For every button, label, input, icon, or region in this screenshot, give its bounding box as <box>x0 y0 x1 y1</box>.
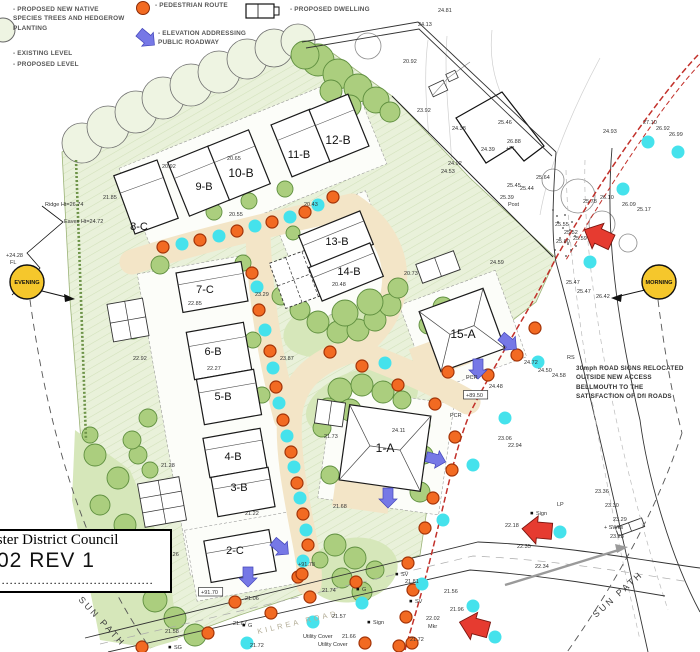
spot-level: 24.59 <box>490 260 504 266</box>
svg-text:22.92: 22.92 <box>133 356 147 362</box>
svg-text:Sign: Sign <box>536 511 547 517</box>
plot-label: 13-B <box>325 236 348 248</box>
svg-text:SG: SG <box>174 645 182 651</box>
svg-text:SV: SV <box>415 599 423 605</box>
legend-pedestrian-label: - PEDESTRIAN ROUTE <box>155 1 275 10</box>
svg-text:21.81: 21.81 <box>405 579 419 585</box>
svg-text:20.55: 20.55 <box>229 212 243 218</box>
spot-level: 26.99 <box>669 132 683 138</box>
feature-label: RS <box>567 355 575 361</box>
svg-text:21.72: 21.72 <box>250 643 264 649</box>
pedestrian-route-dot <box>350 576 362 588</box>
existing-tree <box>619 234 637 252</box>
svg-text:26.99: 26.99 <box>669 132 683 138</box>
svg-text:+24.28: +24.28 <box>6 253 23 259</box>
street-marker-dot <box>617 183 630 196</box>
svg-text:+FL: +FL <box>506 146 516 152</box>
street-marker-dot <box>489 631 502 644</box>
plot-label: 7-C <box>196 284 214 296</box>
pedestrian-route-dot <box>511 349 523 361</box>
feature-label: G <box>243 623 253 629</box>
legend-planting-label: - PROPOSED NEW NATIVE SPECIES TREES AND … <box>13 5 148 33</box>
pedestrian-route-dot <box>302 539 314 551</box>
tree <box>357 289 383 315</box>
svg-text:25.55: 25.55 <box>555 222 569 228</box>
svg-text:25.64: 25.64 <box>536 175 550 181</box>
plot-label: 2-C <box>226 545 244 557</box>
spot-level: 21.74 <box>322 588 336 594</box>
svg-text:21.72: 21.72 <box>410 637 424 643</box>
feature-label: Mkr <box>428 624 437 630</box>
svg-text:23.92: 23.92 <box>417 108 431 114</box>
spot-level: 21.85 <box>103 195 117 201</box>
svg-text:25.45: 25.45 <box>507 183 521 189</box>
svg-text:23.36: 23.36 <box>595 489 609 495</box>
plot-label: 8-C <box>130 221 148 233</box>
svg-text:26.92: 26.92 <box>656 126 670 132</box>
tree <box>351 374 373 396</box>
plot-label: 3-B <box>230 482 247 494</box>
tree <box>151 256 169 274</box>
feature-label: Post <box>508 202 519 208</box>
spot-level: +24.28 <box>6 253 23 259</box>
spot-level: 21.68 <box>333 504 347 510</box>
title-block: Mid Ulster District Council Drawing 02 R… <box>0 529 172 593</box>
svg-text:23.87: 23.87 <box>280 356 294 362</box>
title-block-number-label: Number..................................… <box>0 573 165 588</box>
svg-text:LP: LP <box>557 502 564 508</box>
spot-level: 21.66 <box>342 634 356 640</box>
tree <box>241 193 257 209</box>
street-marker-dot <box>554 526 567 539</box>
svg-text:23.29: 23.29 <box>255 292 269 298</box>
svg-text:25.44: 25.44 <box>520 186 534 192</box>
spot-level: 21.96 <box>450 607 464 613</box>
pedestrian-route-dot <box>419 522 431 534</box>
svg-text:21.56: 21.56 <box>444 589 458 595</box>
pedestrian-route-dot <box>446 464 458 476</box>
feature-label: SV <box>410 599 423 605</box>
svg-text:+ SWks: + SWks <box>604 525 623 531</box>
spot-level: 21.58 <box>165 629 179 635</box>
svg-text:25.46: 25.46 <box>498 120 512 126</box>
spot-level: 24.81 <box>438 8 452 14</box>
title-block-council: Mid Ulster District Council <box>0 532 165 549</box>
tree <box>123 431 141 449</box>
pedestrian-route-dot <box>277 414 289 426</box>
plot-label: 11-B <box>288 149 310 161</box>
spot-level: 24.58 <box>552 373 566 379</box>
tree <box>307 311 329 333</box>
plot-label: 10-B <box>228 166 253 180</box>
svg-text:PCR: PCR <box>466 375 478 381</box>
spot-level: 25.78 <box>583 199 597 205</box>
plot-label: 4-B <box>224 451 241 463</box>
svg-text:+89.50: +89.50 <box>466 393 483 399</box>
svg-text:25.78: 25.78 <box>583 199 597 205</box>
street-marker-dot <box>467 459 480 472</box>
svg-text:24.50: 24.50 <box>538 368 552 374</box>
svg-text:23.30: 23.30 <box>605 503 619 509</box>
street-marker-dot <box>467 600 480 613</box>
street-marker-dot <box>213 230 226 243</box>
svg-text:Eaves Ht=24.72: Eaves Ht=24.72 <box>64 219 103 225</box>
spot-level: 23.28 <box>610 534 624 540</box>
pedestrian-route-dot <box>356 360 368 372</box>
pedestrian-route-dot <box>253 304 265 316</box>
street-marker-dot <box>281 430 294 443</box>
svg-text:25.59: 25.59 <box>573 236 587 242</box>
tree <box>321 466 339 484</box>
spot-level: 24.11 <box>392 428 405 434</box>
svg-text:SV: SV <box>401 572 409 578</box>
spot-level: 24.92 <box>448 161 462 167</box>
svg-text:21.57: 21.57 <box>332 614 346 620</box>
red-direction-arrow-icon <box>521 515 553 546</box>
pedestrian-route-dot <box>291 477 303 489</box>
spot-level: 20.73 <box>404 271 418 277</box>
spot-level: 25.45 <box>507 183 521 189</box>
spot-level: 25.46 <box>498 120 512 126</box>
svg-text:24.92: 24.92 <box>448 161 462 167</box>
svg-text:22.34: 22.34 <box>535 564 549 570</box>
spot-level: 26.92 <box>656 126 670 132</box>
street-marker-dot <box>259 324 272 337</box>
street-marker-dot <box>176 238 189 251</box>
pedestrian-route-dot <box>270 381 282 393</box>
svg-text:24.72: 24.72 <box>524 360 538 366</box>
spot-level: 25.17 <box>637 207 651 213</box>
spot-level: 27.10 <box>643 120 657 126</box>
legend-existing-level-label: - EXISTING LEVEL <box>13 49 133 58</box>
svg-text:24.59: 24.59 <box>490 260 504 266</box>
tree <box>286 226 300 240</box>
spot-level: 20.92 <box>162 164 176 170</box>
morning-label: MORNING <box>645 280 672 286</box>
spot-level: 23.87 <box>280 356 294 362</box>
spot-level: 22.18 <box>505 523 519 529</box>
spot-level: 23.36 <box>595 489 609 495</box>
pedestrian-route-dot <box>202 627 214 639</box>
plot-label: 6-B <box>204 346 221 358</box>
spot-level: 25.39 <box>500 195 514 201</box>
spot-level: 21.28 <box>161 463 175 469</box>
spot-level: 23.29 <box>613 517 627 523</box>
svg-text:25.39: 25.39 <box>500 195 514 201</box>
svg-text:24.81: 24.81 <box>438 8 452 14</box>
feature-label: PCR <box>466 375 478 381</box>
street-marker-dot <box>437 514 450 527</box>
street-marker-dot <box>273 397 286 410</box>
svg-text:PCR: PCR <box>450 413 462 419</box>
spot-level: 23.92 <box>417 108 431 114</box>
tree <box>324 534 346 556</box>
svg-text:22.02: 22.02 <box>426 616 440 622</box>
street-marker-dot <box>379 357 392 370</box>
pedestrian-route-dot <box>429 398 441 410</box>
svg-text:20.73: 20.73 <box>404 271 418 277</box>
pedestrian-route-dot <box>400 611 412 623</box>
spot-level: 20.65 <box>227 156 241 162</box>
spot-level: 23.30 <box>605 503 619 509</box>
svg-text:22.85: 22.85 <box>188 301 202 307</box>
svg-text:24.93: 24.93 <box>603 129 617 135</box>
pedestrian-route-dot <box>266 216 278 228</box>
spot-level: 20.55 <box>229 212 243 218</box>
pedestrian-route-dot <box>327 191 339 203</box>
tree <box>277 181 293 197</box>
tree <box>107 467 129 489</box>
spot-level: 23.06 <box>498 436 512 442</box>
outbuilding <box>314 399 345 427</box>
svg-text:25.60: 25.60 <box>556 239 570 245</box>
svg-text:20.92: 20.92 <box>162 164 176 170</box>
svg-text:26.42: 26.42 <box>596 294 610 300</box>
pedestrian-route-dot <box>194 234 206 246</box>
tree <box>291 41 319 69</box>
spot-level: 21.72 <box>410 637 424 643</box>
spot-level: 21.22 <box>245 511 259 517</box>
tree <box>380 102 400 122</box>
feature-label: + SWks <box>604 525 623 531</box>
svg-text:FL: FL <box>10 260 16 266</box>
soil-dot <box>565 255 567 257</box>
spot-level: 24.93 <box>603 129 617 135</box>
spot-level: 24.72 <box>524 360 538 366</box>
svg-text:21.73: 21.73 <box>324 434 338 440</box>
spot-level: 25.44 <box>520 186 534 192</box>
tree <box>84 444 106 466</box>
street-marker-dot <box>356 597 369 610</box>
feature-label: LP <box>557 502 564 508</box>
spot-level: 24.13 <box>418 22 432 28</box>
pedestrian-route-dot <box>427 492 439 504</box>
tree <box>139 409 157 427</box>
spot-level: 22.02 <box>426 616 440 622</box>
feature-label: PCR <box>450 413 462 419</box>
svg-text:20.43: 20.43 <box>304 202 318 208</box>
spot-level: 22.35 <box>517 544 531 550</box>
svg-text:20.48: 20.48 <box>332 282 346 288</box>
spot-level: 25.47 <box>566 280 580 286</box>
spot-level: 22.85 <box>188 301 202 307</box>
spot-level: +91.78 <box>298 562 315 568</box>
pedestrian-route-dot <box>285 446 297 458</box>
feature-label: Utility Cover <box>318 642 348 648</box>
svg-text:20.92: 20.92 <box>403 59 417 65</box>
road-signs-note: 30mph ROAD SIGNS RELOCATED OUTSIDE NEW A… <box>576 364 692 402</box>
pedestrian-route-dot <box>265 607 277 619</box>
spot-level: 21.81 <box>405 579 419 585</box>
svg-text:+91.78: +91.78 <box>298 562 315 568</box>
spot-level: 25.55 <box>555 222 569 228</box>
svg-text:24.11: 24.11 <box>392 428 405 434</box>
spot-level: 22.94 <box>508 443 522 449</box>
spot-level: 21.06 <box>245 596 259 602</box>
spot-level: 20.92 <box>403 59 417 65</box>
svg-text:21.06: 21.06 <box>245 596 259 602</box>
soil-dot <box>570 249 572 251</box>
feature-label: SV <box>396 572 409 578</box>
svg-text:22.27: 22.27 <box>207 366 221 372</box>
street-marker-dot <box>672 146 685 159</box>
spot-level: 26.88 <box>507 139 521 145</box>
pedestrian-route-dot <box>297 508 309 520</box>
spot-level: 24.39 <box>481 147 495 153</box>
spot-level: 22.27 <box>207 366 221 372</box>
street-marker-dot <box>584 256 597 269</box>
spot-level: Eaves Ht=24.72 <box>64 219 103 225</box>
svg-text:24.13: 24.13 <box>418 22 432 28</box>
pedestrian-route-dot <box>393 640 405 652</box>
spot-level: Ridge Ht=26.74 <box>45 202 83 208</box>
street-marker-dot <box>294 492 307 505</box>
feature-label: Sign <box>531 511 548 517</box>
pedestrian-route-dot <box>304 591 316 603</box>
pedestrian-route-dot <box>359 637 371 649</box>
spot-level: 24.38 <box>452 126 466 132</box>
pedestrian-route-dot <box>264 345 276 357</box>
spot-level: 21.73 <box>324 434 338 440</box>
plot-label: 1-A <box>376 441 395 455</box>
svg-text:Post: Post <box>508 202 519 208</box>
tree <box>332 300 358 326</box>
svg-text:Mkr: Mkr <box>428 624 437 630</box>
svg-text:26.10: 26.10 <box>600 195 614 201</box>
red-direction-arrow-icon <box>456 609 492 644</box>
svg-text:23.29: 23.29 <box>613 517 627 523</box>
plot-label: 5-B <box>214 391 231 403</box>
svg-text:21.66: 21.66 <box>342 634 356 640</box>
soil-dot <box>575 245 577 247</box>
svg-text:21.96: 21.96 <box>450 607 464 613</box>
svg-text:23.06: 23.06 <box>498 436 512 442</box>
spot-level: 25.47 <box>577 289 591 295</box>
svg-text:20.65: 20.65 <box>227 156 241 162</box>
street-marker-dot <box>249 220 262 233</box>
soil-dot <box>556 215 558 217</box>
spot-level: +FL <box>506 146 516 152</box>
feature-label: +91.70 <box>199 588 223 597</box>
legend-proposed-level-label: - PROPOSED LEVEL <box>13 60 133 69</box>
title-block-revision: 02 REV 1 <box>0 549 95 573</box>
svg-text:G: G <box>362 587 366 593</box>
svg-text:G: G <box>248 623 252 629</box>
svg-text:24.39: 24.39 <box>481 147 495 153</box>
tree <box>366 561 384 579</box>
spot-level: 26.42 <box>596 294 610 300</box>
feature-label: SG <box>169 645 182 651</box>
existing-tree <box>561 179 595 213</box>
street-marker-dot <box>642 136 655 149</box>
pedestrian-route-dot <box>231 225 243 237</box>
spot-level: 26.10 <box>600 195 614 201</box>
pedestrian-route-dot <box>529 322 541 334</box>
feature-label: Utility Cover <box>303 634 333 640</box>
svg-text:24.38: 24.38 <box>452 126 466 132</box>
svg-text:RS: RS <box>567 355 575 361</box>
svg-text:24.53: 24.53 <box>441 169 455 175</box>
plot-label: 12-B <box>325 133 350 147</box>
svg-text:Utility Cover: Utility Cover <box>318 642 348 648</box>
tree <box>393 391 411 409</box>
legend-dwelling-label: - PROPOSED DWELLING <box>290 5 410 14</box>
feature-label: +89.50 <box>464 391 488 400</box>
spot-level: 21.57 <box>332 614 346 620</box>
svg-text:22.18: 22.18 <box>505 523 519 529</box>
svg-text:22.35: 22.35 <box>517 544 531 550</box>
spot-level: 22.34 <box>535 564 549 570</box>
svg-text:24.48: 24.48 <box>489 384 503 390</box>
spot-level: 21.56 <box>444 589 458 595</box>
svg-text:24.58: 24.58 <box>552 373 566 379</box>
feature-label: Sign <box>368 620 385 626</box>
tree <box>388 278 408 298</box>
svg-text:26.88: 26.88 <box>507 139 521 145</box>
svg-text:Utility Cover: Utility Cover <box>303 634 333 640</box>
spot-level: 24.48 <box>489 384 503 390</box>
evening-label: EVENING <box>14 280 39 286</box>
plot-label: 9-B <box>195 181 212 193</box>
existing-tree <box>355 33 381 59</box>
svg-text:Sign: Sign <box>373 620 384 626</box>
svg-text:21.58: 21.58 <box>165 629 179 635</box>
plot-label: 15-A <box>450 327 475 341</box>
spot-level: FL <box>10 260 16 266</box>
soil-dot <box>571 221 573 223</box>
soil-dot <box>564 214 566 216</box>
svg-text:25.47: 25.47 <box>566 280 580 286</box>
svg-text:27.10: 27.10 <box>643 120 657 126</box>
svg-text:21.22: 21.22 <box>245 511 259 517</box>
svg-text:21.85: 21.85 <box>103 195 117 201</box>
svg-text:25.47: 25.47 <box>577 289 591 295</box>
svg-text:25.17: 25.17 <box>637 207 651 213</box>
plot-label: 14-B <box>337 266 360 278</box>
pedestrian-route-dot <box>402 557 414 569</box>
soil-dot <box>552 209 554 211</box>
svg-text:21.28: 21.28 <box>161 463 175 469</box>
outbuilding <box>137 477 186 528</box>
spot-level: 26.09 <box>622 202 636 208</box>
spot-level: 23.29 <box>255 292 269 298</box>
spot-level: 25.64 <box>536 175 550 181</box>
street-marker-dot <box>267 362 280 375</box>
svg-text:23.28: 23.28 <box>610 534 624 540</box>
pedestrian-route-dot <box>324 346 336 358</box>
tree <box>344 547 366 569</box>
spot-level: 21.72 <box>250 643 264 649</box>
street-marker-dot <box>288 461 301 474</box>
street-marker-dot <box>284 211 297 224</box>
svg-text:21.68: 21.68 <box>333 504 347 510</box>
pedestrian-route-dot <box>246 267 258 279</box>
spot-level: 20.43 <box>304 202 318 208</box>
svg-text:22.94: 22.94 <box>508 443 522 449</box>
pedestrian-route-dot <box>449 431 461 443</box>
svg-text:26.09: 26.09 <box>622 202 636 208</box>
street-marker-dot <box>300 524 313 537</box>
spot-level: 24.50 <box>538 368 552 374</box>
spot-level: 25.59 <box>573 236 587 242</box>
svg-text:+91.70: +91.70 <box>201 590 218 596</box>
tree <box>372 381 394 403</box>
street-marker-dot <box>499 412 512 425</box>
pedestrian-route-dot <box>442 366 454 378</box>
pedestrian-route-dot <box>157 241 169 253</box>
legend-elevation-label: - ELEVATION ADDRESSING PUBLIC ROADWAY <box>158 29 278 48</box>
pedestrian-route-dot <box>296 568 308 580</box>
